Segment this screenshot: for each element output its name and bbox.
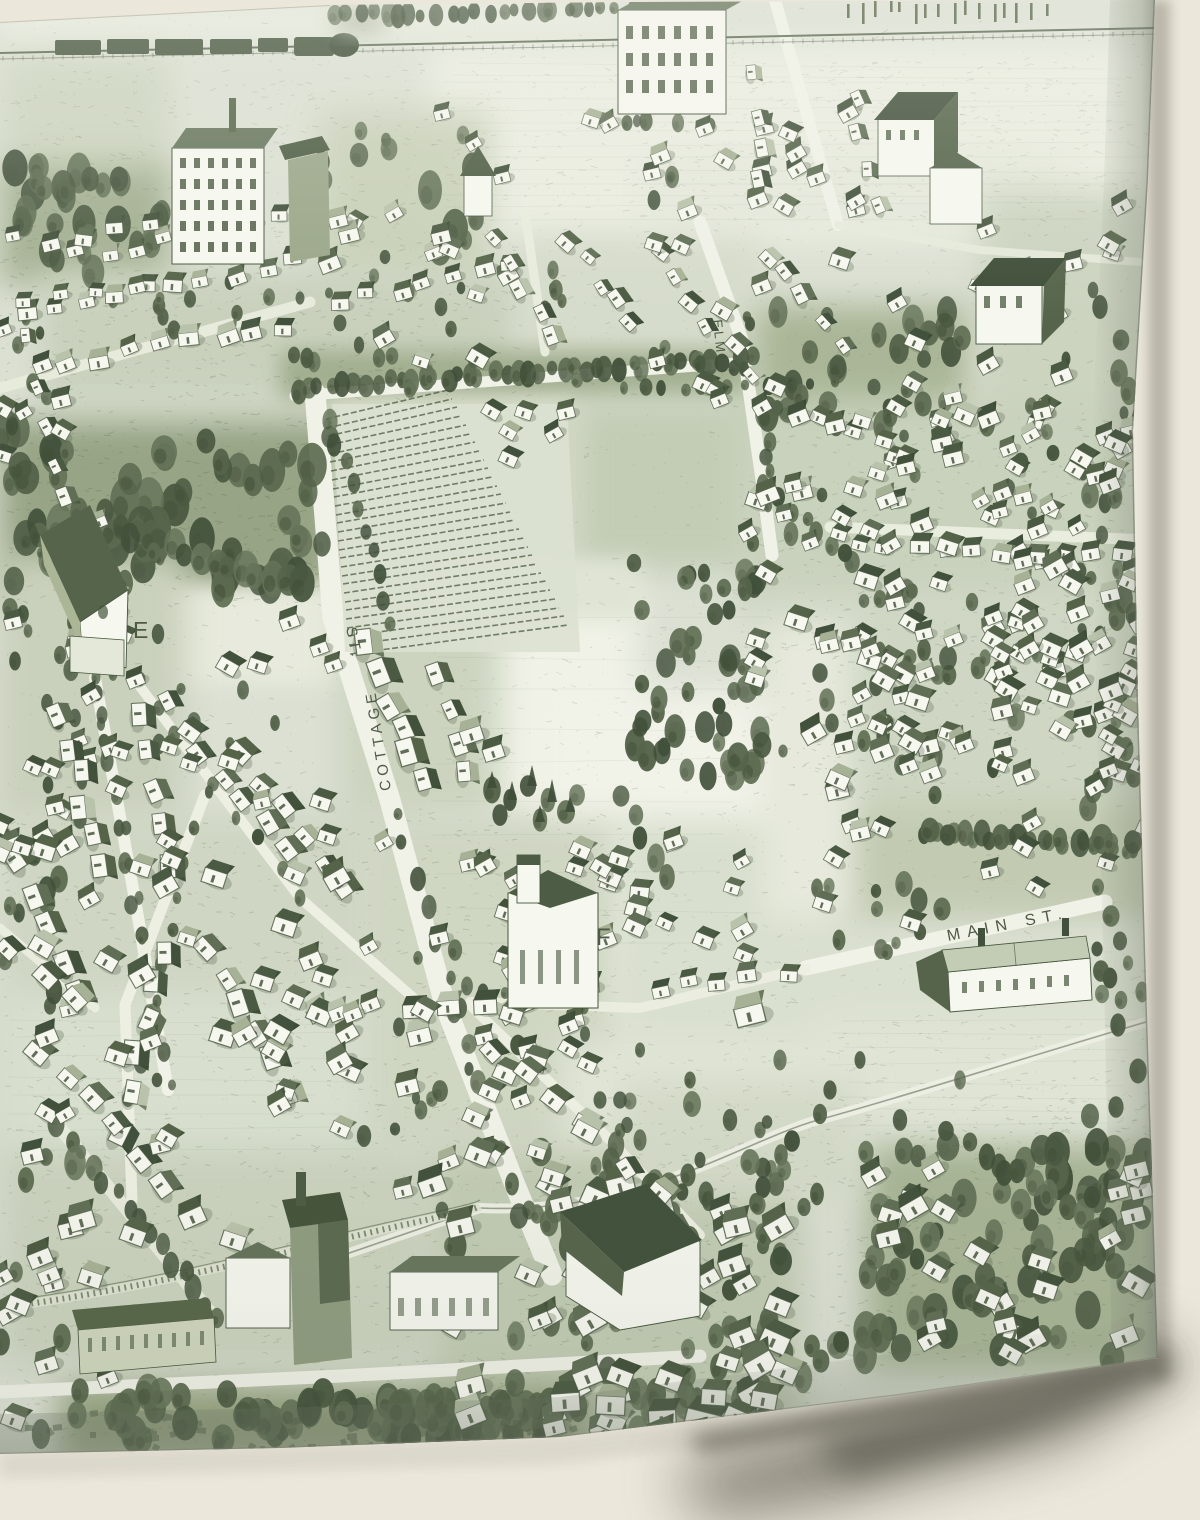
svg-text:E: E [133,617,148,643]
svg-text:F: F [596,924,611,951]
